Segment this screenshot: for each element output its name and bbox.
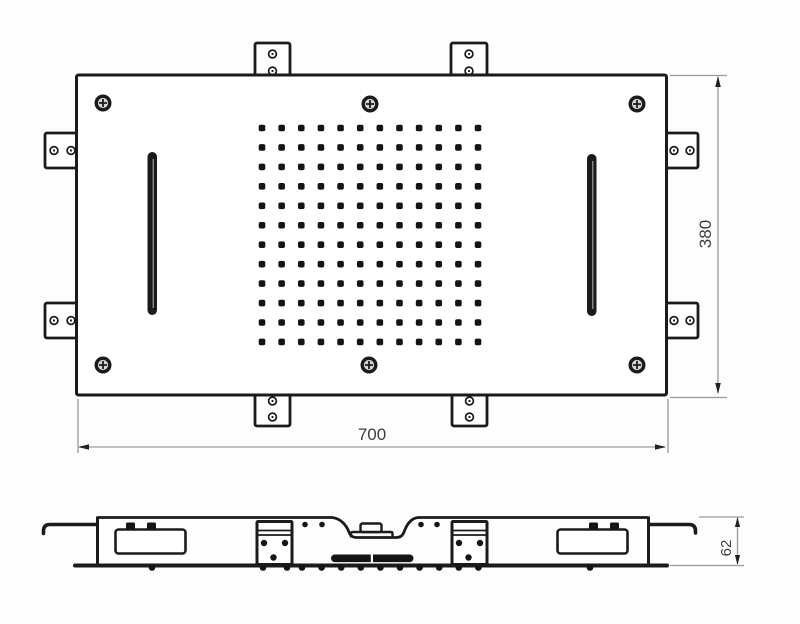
profile-nozzle-tick bbox=[436, 564, 443, 571]
profile-nozzle-tick bbox=[338, 564, 345, 571]
spray-nozzle bbox=[435, 319, 442, 326]
spray-nozzle bbox=[259, 339, 266, 346]
tab-hole-center bbox=[673, 149, 675, 151]
spray-nozzle bbox=[396, 144, 403, 151]
spray-nozzle bbox=[435, 339, 442, 346]
spray-nozzle bbox=[298, 125, 305, 132]
profile-nozzle-tick bbox=[587, 564, 594, 571]
spray-nozzle bbox=[377, 164, 384, 171]
spray-nozzle bbox=[435, 144, 442, 151]
spray-nozzle bbox=[396, 241, 403, 248]
profile-surface-dot bbox=[434, 522, 440, 528]
spray-nozzle bbox=[455, 164, 462, 171]
profile-nozzle-tick bbox=[299, 564, 306, 571]
spray-nozzle bbox=[435, 164, 442, 171]
spray-nozzle bbox=[259, 144, 266, 151]
spray-nozzle bbox=[337, 164, 344, 171]
spray-nozzle bbox=[455, 183, 462, 190]
spray-nozzle bbox=[377, 203, 384, 210]
spray-nozzle bbox=[455, 222, 462, 229]
width-arrow-right bbox=[655, 444, 666, 450]
bracket-screw-dot bbox=[282, 540, 288, 546]
spray-nozzle bbox=[337, 144, 344, 151]
spray-nozzle bbox=[435, 125, 442, 132]
tab-hole-center bbox=[271, 53, 273, 55]
spray-nozzle bbox=[475, 164, 482, 171]
shower-panel-drawing: 700 380 62 bbox=[0, 0, 800, 624]
spray-nozzle bbox=[259, 300, 266, 307]
spray-nozzle bbox=[278, 222, 285, 229]
spray-nozzle bbox=[357, 144, 364, 151]
spray-nozzle bbox=[318, 280, 325, 287]
spray-nozzle bbox=[377, 144, 384, 151]
spray-nozzle bbox=[435, 280, 442, 287]
spray-nozzle bbox=[377, 125, 384, 132]
profile-nozzle-tick bbox=[318, 564, 325, 571]
height-dimension-label: 380 bbox=[696, 220, 715, 248]
spray-nozzle bbox=[377, 280, 384, 287]
width-dimension-label: 700 bbox=[358, 425, 386, 444]
spray-nozzle bbox=[396, 222, 403, 229]
waterfall-slot bbox=[587, 154, 597, 316]
profile-nozzle-tick bbox=[397, 564, 404, 571]
tab-hole-center bbox=[271, 70, 273, 72]
spray-nozzle bbox=[357, 203, 364, 210]
spray-nozzle bbox=[416, 222, 423, 229]
spray-nozzle bbox=[475, 339, 482, 346]
tab-hole-center bbox=[468, 53, 470, 55]
spray-nozzle bbox=[298, 241, 305, 248]
spray-nozzle bbox=[455, 261, 462, 268]
tab-hole-center bbox=[468, 400, 470, 402]
spray-nozzle bbox=[337, 203, 344, 210]
spray-nozzle bbox=[475, 183, 482, 190]
width-dimension: 700 bbox=[78, 399, 668, 453]
bracket-screw-dot bbox=[465, 554, 471, 560]
spray-nozzle bbox=[357, 183, 364, 190]
pocket-tab-bump bbox=[126, 523, 135, 530]
spray-nozzle bbox=[377, 339, 384, 346]
spray-nozzle bbox=[357, 300, 364, 307]
spray-nozzle bbox=[318, 222, 325, 229]
spray-nozzle bbox=[259, 183, 266, 190]
spray-nozzle bbox=[475, 261, 482, 268]
spray-nozzle bbox=[318, 319, 325, 326]
spray-nozzle bbox=[455, 144, 462, 151]
spray-nozzle bbox=[357, 339, 364, 346]
spray-nozzle bbox=[416, 241, 423, 248]
spray-nozzle bbox=[396, 164, 403, 171]
profile-view bbox=[44, 517, 696, 571]
spray-nozzle bbox=[337, 319, 344, 326]
spray-nozzle bbox=[278, 300, 285, 307]
profile-right-hook bbox=[650, 525, 696, 534]
spray-nozzle bbox=[455, 125, 462, 132]
spray-nozzle bbox=[396, 300, 403, 307]
spray-nozzle bbox=[318, 183, 325, 190]
spray-nozzle bbox=[475, 319, 482, 326]
height-arrow-bottom bbox=[715, 383, 721, 394]
spray-nozzle bbox=[298, 339, 305, 346]
tab-hole-center bbox=[53, 149, 55, 151]
spray-nozzle bbox=[475, 280, 482, 287]
spray-nozzle bbox=[455, 300, 462, 307]
spray-nozzle bbox=[475, 241, 482, 248]
spray-nozzle bbox=[357, 319, 364, 326]
spray-nozzle bbox=[318, 339, 325, 346]
tab-hole-center bbox=[468, 416, 470, 418]
profile-nozzle-tick bbox=[149, 564, 156, 571]
tab-hole-center bbox=[689, 149, 691, 151]
pocket-tab-bump bbox=[147, 523, 156, 530]
spray-nozzle bbox=[435, 261, 442, 268]
depth-dimension-label: 62 bbox=[718, 540, 735, 557]
spray-nozzle bbox=[396, 183, 403, 190]
pocket-tab-bump bbox=[610, 523, 619, 530]
spray-nozzle bbox=[435, 203, 442, 210]
spray-nozzle bbox=[357, 261, 364, 268]
spray-nozzle bbox=[455, 203, 462, 210]
spray-nozzle bbox=[357, 125, 364, 132]
spray-nozzle bbox=[278, 203, 285, 210]
spray-nozzle bbox=[259, 319, 266, 326]
spray-nozzle bbox=[259, 203, 266, 210]
tab-hole-center bbox=[271, 416, 273, 418]
spray-nozzle bbox=[318, 261, 325, 268]
spray-nozzle bbox=[298, 261, 305, 268]
spray-nozzle bbox=[337, 280, 344, 287]
profile-nozzle-tick bbox=[416, 564, 423, 571]
tab-hole-center bbox=[70, 319, 72, 321]
pocket-tab-bump bbox=[589, 523, 598, 530]
spray-nozzle bbox=[475, 222, 482, 229]
tab-hole-center bbox=[70, 149, 72, 151]
profile-surface-dot bbox=[418, 522, 424, 528]
spray-nozzle bbox=[475, 203, 482, 210]
technical-drawing-page: 700 380 62 bbox=[0, 0, 800, 624]
tab-hole-center bbox=[673, 319, 675, 321]
spray-nozzle bbox=[337, 222, 344, 229]
spray-nozzle bbox=[259, 280, 266, 287]
spray-nozzle bbox=[278, 183, 285, 190]
spray-nozzle bbox=[475, 125, 482, 132]
height-dimension: 380 bbox=[670, 76, 727, 398]
spray-nozzle bbox=[377, 183, 384, 190]
spray-nozzle bbox=[416, 144, 423, 151]
spray-nozzle bbox=[357, 164, 364, 171]
spray-nozzle bbox=[396, 339, 403, 346]
spray-nozzle bbox=[435, 222, 442, 229]
spray-nozzle bbox=[298, 203, 305, 210]
profile-pocket bbox=[558, 530, 628, 554]
spray-nozzle bbox=[278, 241, 285, 248]
waterfall-slot bbox=[148, 152, 158, 315]
spray-nozzle bbox=[278, 280, 285, 287]
spray-nozzle bbox=[396, 125, 403, 132]
spray-nozzle bbox=[377, 261, 384, 268]
spray-nozzle bbox=[416, 319, 423, 326]
spray-nozzle bbox=[298, 319, 305, 326]
profile-pocket bbox=[116, 530, 186, 554]
spray-nozzle bbox=[357, 280, 364, 287]
spray-nozzle bbox=[455, 280, 462, 287]
spray-nozzle bbox=[416, 125, 423, 132]
profile-nozzle-tick bbox=[358, 564, 365, 571]
spray-nozzle bbox=[455, 319, 462, 326]
spray-nozzle bbox=[416, 339, 423, 346]
spray-nozzle bbox=[318, 203, 325, 210]
spray-nozzle bbox=[278, 144, 285, 151]
inlet-connector bbox=[361, 524, 382, 533]
spray-nozzle bbox=[416, 183, 423, 190]
spray-nozzle bbox=[416, 164, 423, 171]
spray-nozzle bbox=[298, 280, 305, 287]
spray-nozzle bbox=[396, 280, 403, 287]
spray-nozzle bbox=[475, 144, 482, 151]
spray-nozzle bbox=[435, 300, 442, 307]
spray-nozzle bbox=[337, 241, 344, 248]
spray-nozzle bbox=[298, 183, 305, 190]
spray-nozzle bbox=[278, 319, 285, 326]
spray-nozzle bbox=[435, 241, 442, 248]
tab-hole-center bbox=[271, 400, 273, 402]
profile-nozzle-tick bbox=[377, 564, 384, 571]
spray-nozzle bbox=[259, 164, 266, 171]
spray-nozzle bbox=[318, 164, 325, 171]
spray-nozzle bbox=[337, 125, 344, 132]
spray-nozzle bbox=[318, 300, 325, 307]
spray-nozzle bbox=[357, 222, 364, 229]
spray-nozzle bbox=[396, 261, 403, 268]
spray-nozzle bbox=[455, 241, 462, 248]
profile-surface-dot bbox=[319, 522, 325, 528]
tab-hole-center bbox=[468, 70, 470, 72]
tab-hole-center bbox=[689, 319, 691, 321]
spray-nozzle bbox=[278, 339, 285, 346]
spray-nozzle bbox=[278, 261, 285, 268]
spray-nozzle bbox=[435, 183, 442, 190]
spray-nozzle bbox=[455, 339, 462, 346]
depth-arrow-top bbox=[735, 517, 740, 527]
spray-nozzle bbox=[337, 300, 344, 307]
spray-nozzle bbox=[259, 222, 266, 229]
spray-nozzle bbox=[298, 144, 305, 151]
tab-hole-center bbox=[53, 319, 55, 321]
spray-nozzle bbox=[357, 241, 364, 248]
profile-left-hook bbox=[44, 525, 98, 534]
spray-nozzle bbox=[337, 339, 344, 346]
spray-nozzle bbox=[416, 203, 423, 210]
spray-nozzle bbox=[318, 125, 325, 132]
spray-nozzle bbox=[298, 222, 305, 229]
spray-nozzle bbox=[377, 241, 384, 248]
spray-nozzle bbox=[416, 280, 423, 287]
spray-nozzle bbox=[259, 261, 266, 268]
spray-nozzle bbox=[377, 222, 384, 229]
height-arrow-top bbox=[715, 76, 721, 87]
spray-nozzle bbox=[278, 164, 285, 171]
spray-nozzle bbox=[416, 300, 423, 307]
bracket-screw-dot bbox=[261, 540, 267, 546]
spray-nozzle bbox=[278, 125, 285, 132]
bracket-screw-dot bbox=[477, 540, 483, 546]
depth-arrow-bottom bbox=[735, 555, 740, 565]
spray-nozzle bbox=[475, 300, 482, 307]
profile-surface-dot bbox=[302, 522, 308, 528]
diffuser-bar-gap bbox=[371, 554, 373, 563]
spray-nozzle bbox=[337, 261, 344, 268]
panel-outline bbox=[77, 75, 667, 395]
spray-nozzle bbox=[396, 203, 403, 210]
width-arrow-left bbox=[78, 444, 89, 450]
spray-nozzle bbox=[318, 144, 325, 151]
spray-nozzle bbox=[377, 319, 384, 326]
spray-nozzle bbox=[396, 319, 403, 326]
spray-nozzle bbox=[259, 241, 266, 248]
bracket-screw-dot bbox=[270, 554, 276, 560]
spray-nozzle bbox=[298, 164, 305, 171]
spray-nozzle bbox=[298, 300, 305, 307]
spray-nozzle bbox=[259, 125, 266, 132]
spray-nozzle bbox=[377, 300, 384, 307]
spray-nozzle bbox=[416, 261, 423, 268]
bracket-screw-dot bbox=[456, 540, 462, 546]
spray-nozzle bbox=[318, 241, 325, 248]
spray-nozzle bbox=[337, 183, 344, 190]
